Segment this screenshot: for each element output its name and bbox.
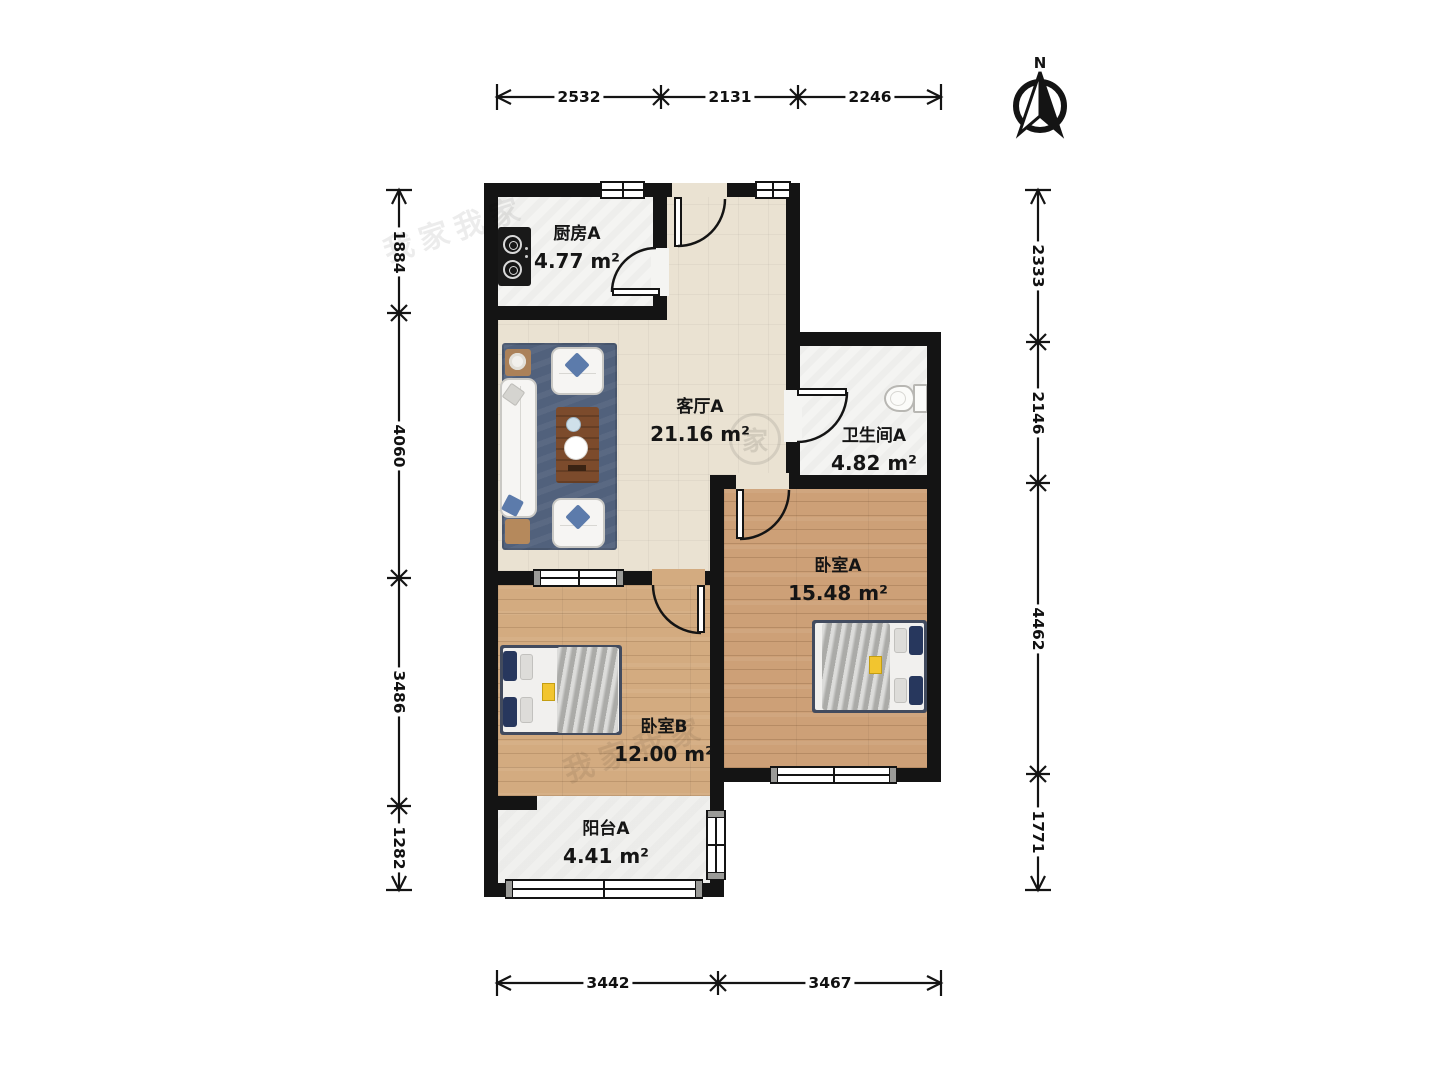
door-opening-bedroom-b (652, 569, 705, 585)
floorplan-canvas: N 2532 2131 2246 3442 3467 1884 4060 348… (0, 0, 1440, 1080)
compass-ring (1016, 82, 1064, 130)
room-name: 卧室A (743, 554, 933, 579)
dimension-line-left (386, 190, 412, 890)
dimension-label: 2131 (705, 88, 754, 106)
door-leaf (674, 197, 682, 247)
room-label-bathroom: 卫生间A 4.82 m² (779, 424, 969, 478)
toilet (884, 383, 929, 414)
room-label-balcony: 阳台A 4.41 m² (511, 817, 701, 871)
room-name: 客厅A (605, 395, 795, 420)
dimension-line-right (1025, 190, 1051, 890)
room-area: 21.16 m² (605, 420, 795, 449)
door-leaf (697, 585, 705, 633)
compass-north-label: N (1034, 54, 1047, 72)
door-leaf (612, 288, 660, 296)
pillow (503, 651, 517, 681)
pillow (503, 697, 517, 727)
flower-decor (509, 353, 526, 370)
window (600, 181, 645, 199)
dimension-label: 2146 (1029, 388, 1047, 437)
wall-segment (727, 183, 755, 197)
dimension-label: 4462 (1029, 604, 1047, 653)
wall-segment (786, 346, 800, 390)
pillow (894, 678, 907, 703)
window (505, 879, 703, 899)
dimension-label: 2333 (1029, 241, 1047, 290)
room-area: 15.48 m² (743, 579, 933, 608)
dimension-label: 2246 (845, 88, 894, 106)
door-leaf (736, 489, 744, 539)
pillow (909, 676, 923, 705)
dimension-label: 1771 (1029, 807, 1047, 856)
book (869, 656, 882, 674)
north-arrow-icon (1019, 72, 1040, 134)
north-arrow-icon (1040, 72, 1061, 134)
wall-segment (786, 332, 941, 346)
dimension-label: 3467 (805, 974, 854, 992)
side-table (505, 519, 530, 544)
dimension-label: 3486 (390, 667, 408, 716)
wall-segment (484, 571, 533, 585)
door-opening-entrance (672, 183, 727, 197)
remote (568, 465, 586, 471)
room-name: 阳台A (511, 817, 701, 842)
room-label-bedroom-a: 卧室A 15.48 m² (743, 554, 933, 608)
room-label-living: 客厅A 21.16 m² (605, 395, 795, 449)
wall-segment (484, 796, 537, 810)
pillow (909, 626, 923, 655)
toilet-bowl (884, 385, 915, 412)
room-area: 4.77 m² (482, 247, 672, 276)
room-name: 厨房A (482, 222, 672, 247)
room-label-kitchen: 厨房A 4.77 m² (482, 222, 672, 276)
door-leaf (797, 388, 847, 396)
wall-segment (705, 571, 724, 585)
north-compass: N (1016, 54, 1064, 134)
dimension-label: 1282 (390, 823, 408, 872)
saucer (566, 417, 581, 432)
wall-segment (703, 883, 724, 897)
cup (564, 436, 588, 460)
window (755, 181, 791, 199)
wall-segment (786, 183, 800, 346)
pillow (894, 628, 907, 653)
wall-segment (710, 768, 770, 782)
room-name: 卧室B (569, 715, 759, 740)
dimension-label: 2532 (554, 88, 603, 106)
room-name: 卫生间A (779, 424, 969, 449)
bed-a (812, 620, 927, 713)
wall-segment (484, 306, 667, 320)
window (533, 569, 624, 587)
room-area: 12.00 m² (569, 740, 759, 769)
dimension-line-bottom (497, 970, 941, 996)
pillow (520, 654, 533, 680)
window (706, 810, 726, 880)
room-label-bedroom-b: 卧室B 12.00 m² (569, 715, 759, 769)
dimension-label: 4060 (390, 421, 408, 470)
wall-segment (897, 768, 941, 782)
pillow (520, 697, 533, 723)
wall-segment (484, 883, 505, 897)
book (542, 683, 555, 701)
wall-segment (484, 183, 498, 897)
toilet-tank (913, 384, 928, 413)
dimension-label: 3442 (583, 974, 632, 992)
window (770, 766, 897, 784)
room-area: 4.82 m² (779, 449, 969, 478)
room-area: 4.41 m² (511, 842, 701, 871)
wall-segment (624, 571, 652, 585)
